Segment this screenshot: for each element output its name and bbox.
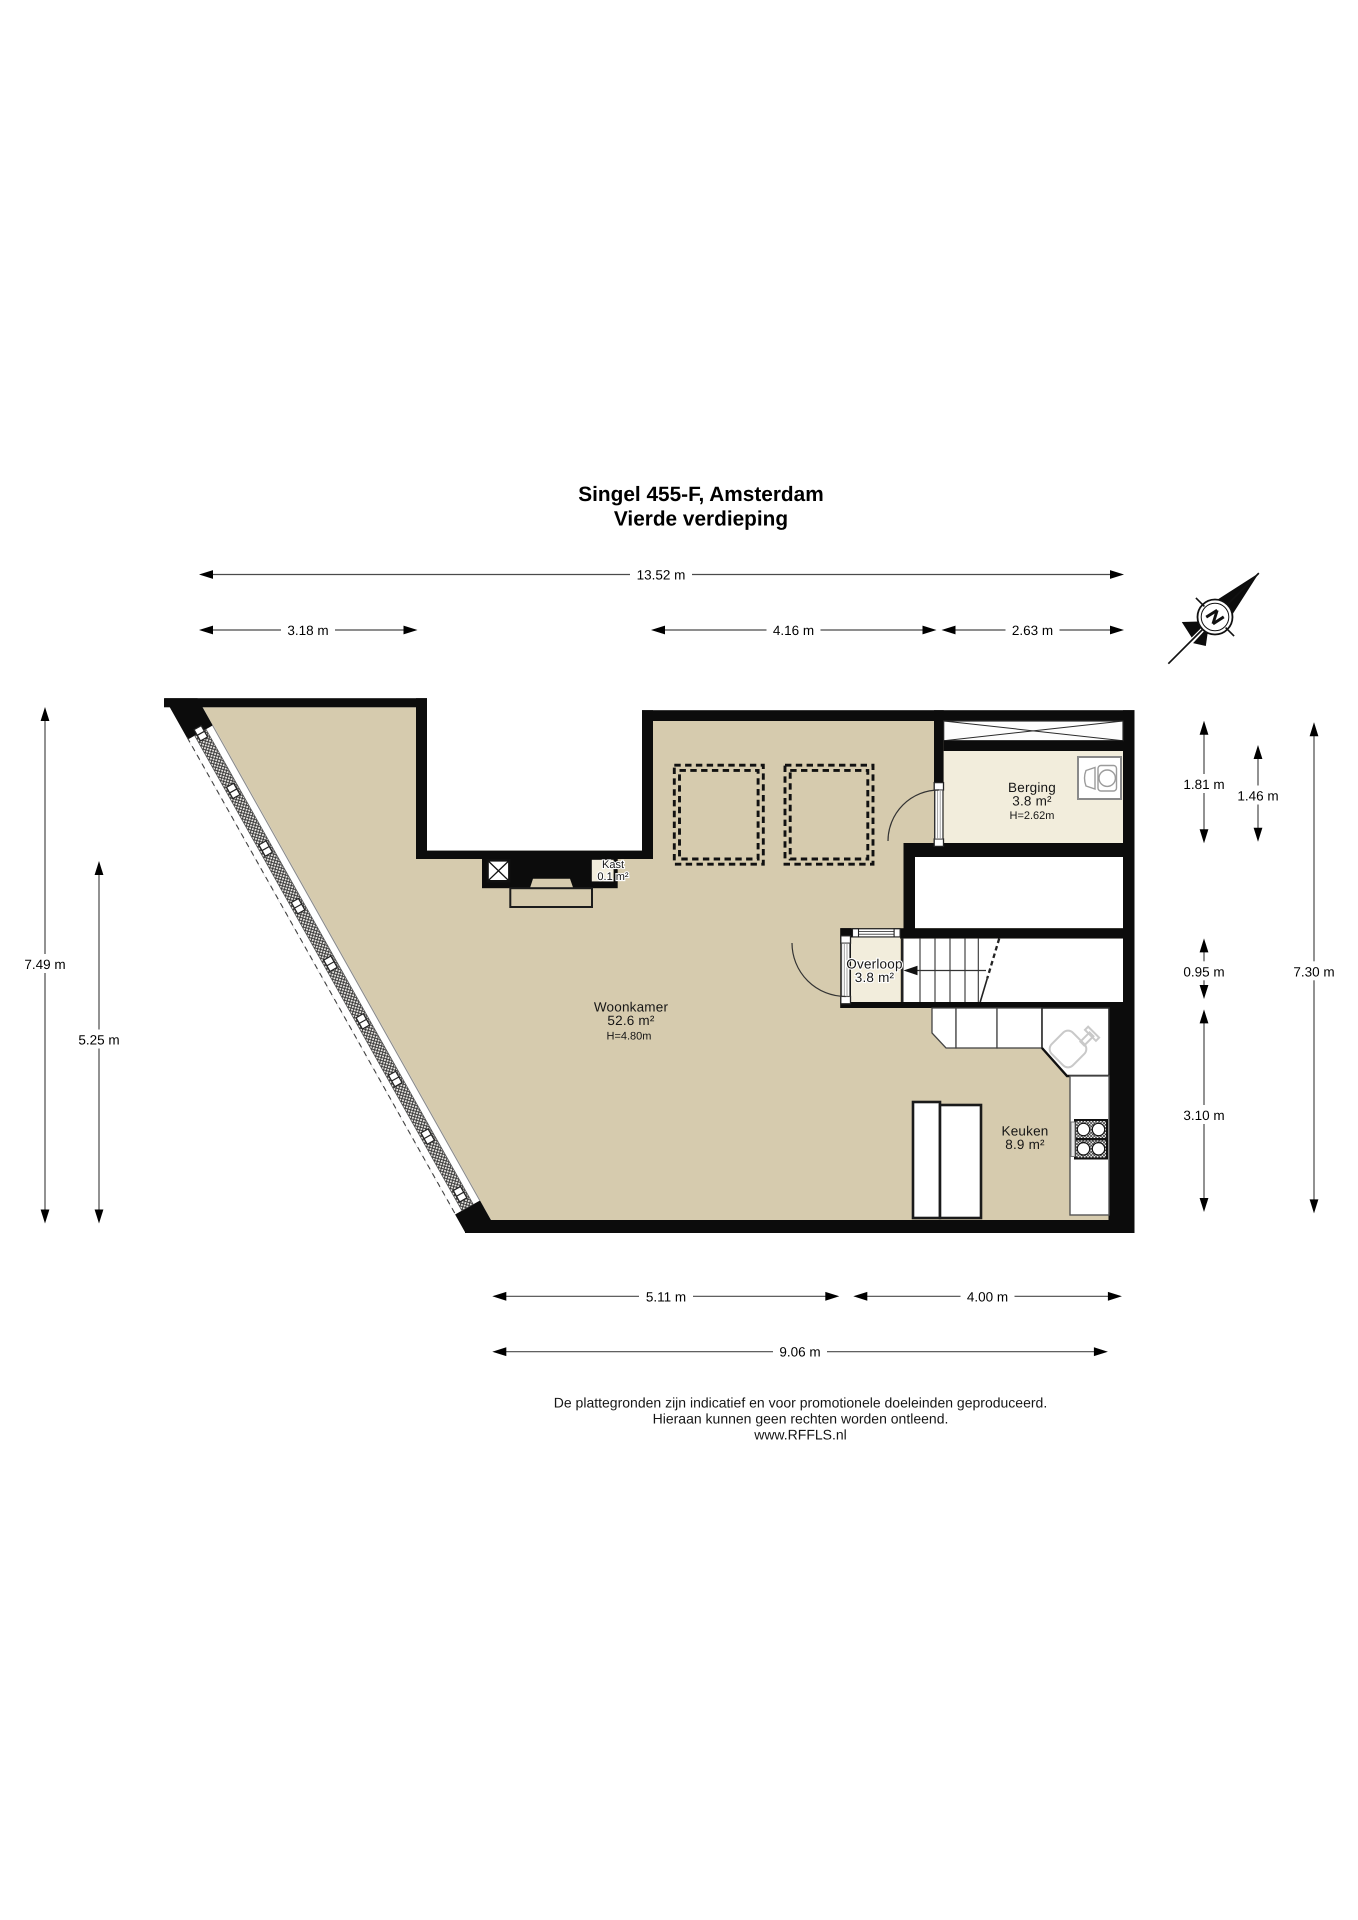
svg-text:4.00 m: 4.00 m <box>967 1289 1008 1304</box>
svg-text:1.81 m: 1.81 m <box>1183 777 1224 792</box>
svg-text:52.6 m²: 52.6 m² <box>607 1013 654 1028</box>
svg-text:H=2.62m: H=2.62m <box>1010 810 1055 822</box>
svg-text:Kast: Kast <box>602 859 624 871</box>
svg-text:3.18 m: 3.18 m <box>287 623 328 638</box>
svg-text:1.46 m: 1.46 m <box>1237 789 1278 804</box>
svg-text:8.9 m²: 8.9 m² <box>1005 1137 1045 1152</box>
svg-text:3.8 m²: 3.8 m² <box>1012 794 1052 809</box>
svg-text:H=4.80m: H=4.80m <box>607 1031 652 1043</box>
svg-text:3.10 m: 3.10 m <box>1183 1108 1224 1123</box>
svg-text:www.RFFLS.nl: www.RFFLS.nl <box>753 1427 847 1443</box>
svg-text:5.11 m: 5.11 m <box>646 1289 686 1304</box>
svg-text:9.06 m: 9.06 m <box>779 1345 820 1360</box>
svg-text:0.1 m²: 0.1 m² <box>597 871 629 883</box>
svg-text:Singel 455-F, Amsterdam: Singel 455-F, Amsterdam <box>578 483 823 506</box>
svg-text:4.16 m: 4.16 m <box>773 623 814 638</box>
svg-text:0.95 m: 0.95 m <box>1183 964 1224 979</box>
svg-text:3.8 m²: 3.8 m² <box>855 970 895 985</box>
svg-text:Hieraan kunnen geen rechten wo: Hieraan kunnen geen rechten worden ontle… <box>653 1411 949 1427</box>
svg-text:5.25 m: 5.25 m <box>78 1033 119 1048</box>
svg-text:7.30 m: 7.30 m <box>1293 964 1334 979</box>
svg-text:De plattegronden zijn indicati: De plattegronden zijn indicatief en voor… <box>554 1395 1047 1411</box>
svg-text:7.49 m: 7.49 m <box>24 957 65 972</box>
svg-text:2.63 m: 2.63 m <box>1012 623 1053 638</box>
svg-text:13.52 m: 13.52 m <box>637 568 686 583</box>
svg-text:Vierde verdieping: Vierde verdieping <box>614 508 788 531</box>
